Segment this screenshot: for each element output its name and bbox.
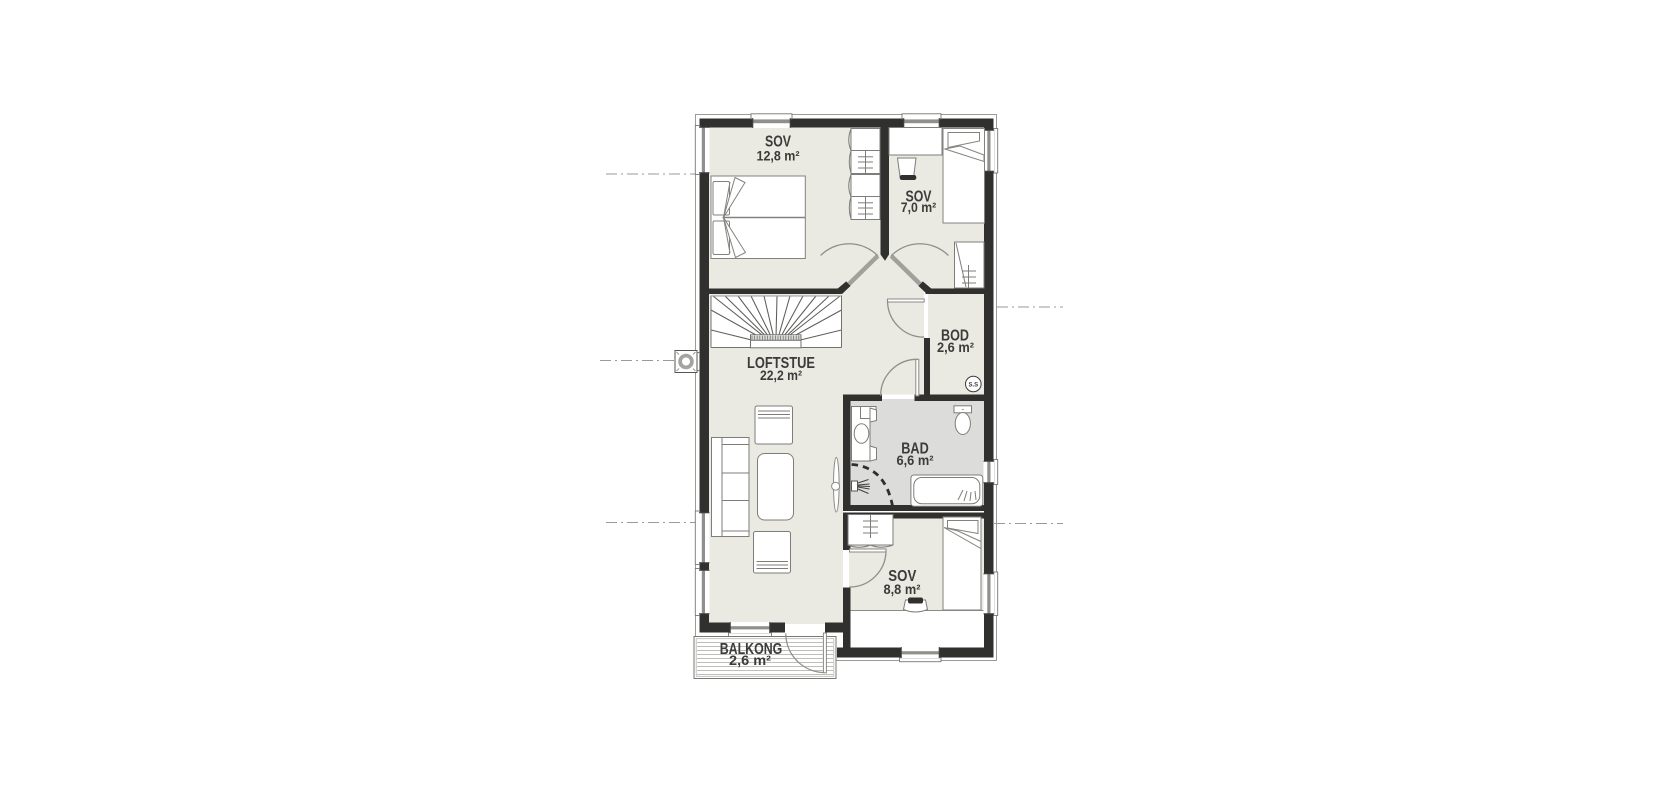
svg-text:S.S: S.S (968, 382, 978, 388)
svg-text:12,8 m²: 12,8 m² (757, 148, 800, 164)
svg-text:6,6 m²: 6,6 m² (897, 452, 934, 468)
svg-text:2,6 m²: 2,6 m² (937, 339, 974, 355)
svg-text:7,0 m²: 7,0 m² (901, 199, 937, 215)
svg-text:8,8 m²: 8,8 m² (884, 581, 921, 597)
svg-text:22,2 m²: 22,2 m² (760, 367, 802, 383)
svg-text:2,6 m²: 2,6 m² (729, 652, 771, 668)
